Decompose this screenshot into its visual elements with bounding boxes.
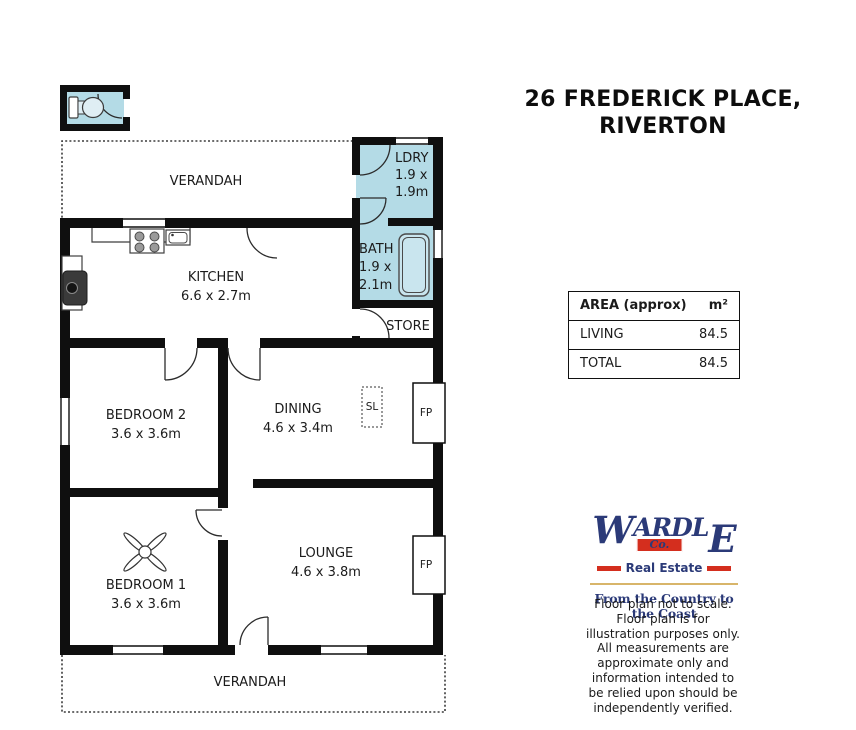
area-table: AREA (approx) m² LIVING 84.5 TOTAL 84.5 — [568, 291, 740, 379]
skylight-label: SL — [366, 401, 379, 413]
title-line2: RIVERTON — [510, 113, 816, 140]
area-row-total: TOTAL 84.5 — [569, 349, 739, 378]
verandah-bottom-label: VERANDAH — [214, 675, 287, 690]
logo-brand-letter: R — [651, 515, 671, 540]
lounge-label: LOUNGE — [299, 546, 354, 561]
fireplace-lounge-label: FP — [420, 559, 432, 571]
dining-label: DINING — [274, 402, 321, 417]
floor-plan: SL FP FP VERANDAH KITCHEN 6.6 x 2.7m LDR… — [0, 0, 470, 730]
bedroom1-door-arc — [196, 510, 222, 536]
logo-co-badge: Co. — [637, 538, 683, 552]
verandah-top-label: VERANDAH — [170, 174, 243, 189]
laundry-dims1: 1.9 x — [395, 168, 428, 183]
fireplace-dining: FP — [413, 383, 445, 443]
area-row-living: LIVING 84.5 — [569, 320, 739, 349]
logo-real-estate: Real Estate — [590, 561, 738, 575]
logo-division-label: Real Estate — [626, 561, 703, 575]
bedroom2-dims: 3.6 x 3.6m — [111, 427, 181, 442]
bedroom1-window — [113, 645, 163, 655]
kitchen-label: KITCHEN — [188, 270, 244, 285]
store-label: STORE — [386, 319, 430, 334]
logo-brand-letter: D — [671, 515, 692, 540]
skylight-box: SL — [362, 387, 382, 427]
kitchen-window — [123, 218, 165, 228]
stove-icon — [130, 229, 164, 253]
total-value: 84.5 — [699, 356, 728, 371]
bedroom2-label: BEDROOM 2 — [106, 408, 186, 423]
lounge-window — [321, 645, 367, 655]
bedroom2-window — [60, 398, 70, 445]
dining-door-arc — [228, 348, 260, 380]
kitchen-door-arc — [247, 228, 277, 258]
area-header-label: AREA (approx) — [580, 298, 687, 313]
bath-dims2: 2.1m — [359, 278, 392, 293]
area-table-header: AREA (approx) m² — [569, 292, 739, 320]
logo-red-bar-right — [707, 566, 731, 571]
page-title: 26 FREDERICK PLACE, RIVERTON — [510, 86, 816, 140]
toilet-icon — [69, 97, 104, 118]
sink-icon — [166, 230, 190, 245]
logo-brand-letter: A — [633, 515, 651, 540]
logo-brand-letter: E — [708, 521, 735, 558]
title-line1: 26 FREDERICK PLACE, — [510, 86, 816, 113]
laundry-window — [396, 137, 428, 145]
living-value: 84.5 — [699, 327, 728, 342]
living-label: LIVING — [580, 327, 624, 342]
bedroom2-door-arc — [165, 348, 197, 380]
heater-icon — [62, 256, 87, 310]
lounge-door-arc — [240, 617, 268, 645]
bath-label: BATH — [359, 242, 394, 257]
ceiling-fan-icon — [122, 531, 168, 573]
disclaimer-text: Floor plan not to scale. Floor plan is f… — [573, 597, 753, 715]
area-header-unit: m² — [709, 298, 728, 313]
logo-red-bar-left — [597, 566, 621, 571]
bedroom1-label: BEDROOM 1 — [106, 578, 186, 593]
fireplace-dining-label: FP — [420, 407, 432, 419]
kitchen-dims: 6.6 x 2.7m — [181, 289, 251, 304]
bath-window — [433, 230, 443, 258]
fireplace-lounge: FP — [413, 536, 445, 594]
logo-gold-rule — [590, 583, 738, 585]
dining-dims: 4.6 x 3.4m — [263, 421, 333, 436]
bath-dims1: 1.9 x — [359, 260, 392, 275]
bathtub-icon — [399, 234, 429, 296]
total-label: TOTAL — [580, 356, 621, 371]
lounge-dims: 4.6 x 3.8m — [291, 565, 361, 580]
bedroom1-dims: 3.6 x 3.6m — [111, 597, 181, 612]
logo-brand-letter: W — [592, 512, 633, 549]
floor-plan-page: SL FP FP VERANDAH KITCHEN 6.6 x 2.7m LDR… — [0, 0, 856, 730]
logo-brand-letter: L — [692, 515, 709, 540]
laundry-label: LDRY — [395, 151, 428, 166]
laundry-dims2: 1.9m — [395, 185, 428, 200]
door-swings — [98, 94, 390, 645]
store-door-arc — [360, 309, 389, 338]
